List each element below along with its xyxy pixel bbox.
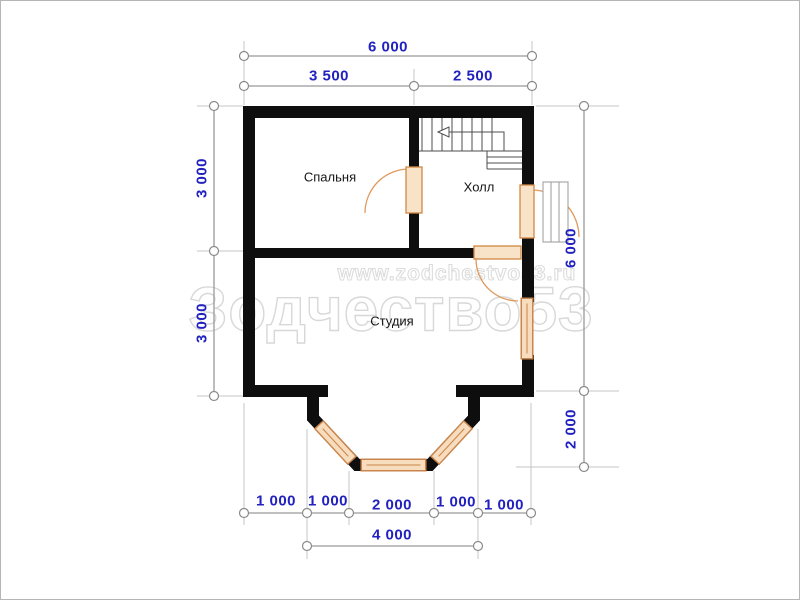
- wall-interior-horizontal: [255, 248, 474, 258]
- door-bedroom: [365, 167, 422, 213]
- dim-bottom-3: 2 000: [372, 497, 412, 514]
- dim-right-main: 6 000: [563, 228, 580, 268]
- window-bay-left: [323, 429, 348, 456]
- wall-interior-vertical-upper: [409, 118, 419, 168]
- room-label-hall: Холл: [464, 180, 495, 195]
- floor-plan-canvas: Зодчество53 www.zodchestvo53.ru: [0, 0, 800, 600]
- windows: [323, 304, 527, 465]
- dim-bottom-2: 1 000: [308, 493, 348, 510]
- staircase: [419, 118, 522, 169]
- wall-right-middle: [522, 236, 534, 302]
- room-label-studio: Студия: [370, 314, 413, 329]
- dim-top-overall: 6 000: [368, 39, 408, 56]
- stairs-direction-arrow: [438, 127, 504, 151]
- dim-top-left: 3 500: [309, 68, 349, 85]
- dim-right-bay: 2 000: [563, 409, 580, 449]
- extension-lines: [197, 41, 619, 559]
- dim-bottom-4: 1 000: [436, 494, 476, 511]
- door-hall-studio: [474, 246, 521, 301]
- wall-bottom-right: [456, 385, 534, 397]
- dim-left-lower: 3 000: [194, 303, 211, 343]
- bay-window-wall: [313, 397, 474, 465]
- dim-bottom-5: 1 000: [484, 497, 524, 514]
- dim-bottom-overall: 4 000: [372, 527, 412, 544]
- wall-bottom-left: [243, 385, 328, 397]
- room-label-bedroom: Спальня: [304, 170, 356, 185]
- dim-top-right: 2 500: [453, 68, 493, 85]
- wall-left: [243, 106, 255, 397]
- dim-bottom-1: 1 000: [256, 493, 296, 510]
- wall-right-upper: [522, 106, 534, 185]
- window-bay-right: [439, 429, 464, 456]
- wall-top: [243, 106, 534, 118]
- dim-left-upper: 3 000: [194, 158, 211, 198]
